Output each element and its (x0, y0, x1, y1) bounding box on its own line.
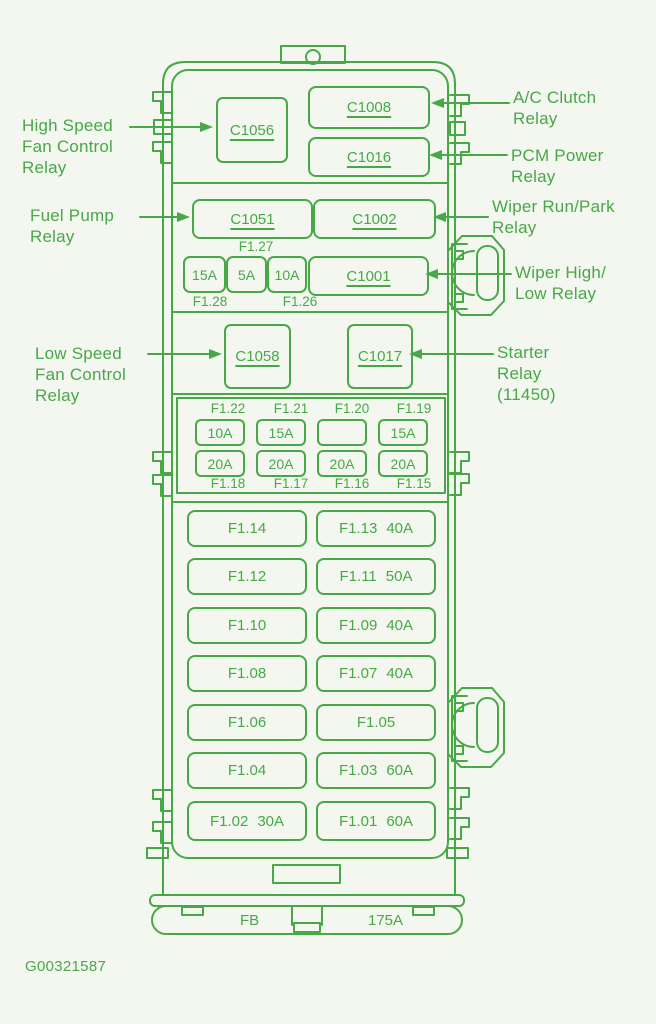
grid-fuse-f1-22: 10A (195, 419, 245, 446)
grid-fuse-f1-18: 20A (195, 450, 245, 477)
grid-label-f1-20: F1.20 (322, 401, 382, 416)
relay-c1008-label: C1008 (347, 99, 391, 116)
callout-low-speed-fan-control-relay: Low Speed Fan Control Relay (35, 343, 126, 406)
grid-label-f1-15: F1.15 (384, 476, 444, 491)
fuse-f1-08: F1.08 (187, 655, 307, 692)
fuse-f1-11: F1.1150A (316, 558, 436, 595)
relay-c1056: C1056 (216, 97, 288, 163)
fuse-f1-04: F1.04 (187, 752, 307, 789)
relay-c1001-label: C1001 (346, 268, 390, 285)
relay-c1058-label: C1058 (235, 348, 279, 365)
grid-label-f1-17: F1.17 (261, 476, 321, 491)
grid-label-f1-19: F1.19 (384, 401, 444, 416)
relay-c1051-label: C1051 (230, 211, 274, 228)
grid-label-f1-18: F1.18 (198, 476, 258, 491)
fuse-f1-02: F1.0230A (187, 801, 307, 841)
grid-fuse-f1-16: 20A (317, 450, 367, 477)
relay-c1017: C1017 (347, 324, 413, 389)
relay-c1002: C1002 (313, 199, 436, 239)
grid-fuse-f1-20-empty (317, 419, 367, 446)
bottom-bar-fb-label: FB (240, 912, 259, 929)
fuse-f1-03: F1.0360A (316, 752, 436, 789)
side-connector-lower (448, 688, 504, 767)
grid-fuse-f1-19: 15A (378, 419, 428, 446)
left-mounting-tabs (147, 92, 172, 858)
fuse-f1-12: F1.12 (187, 558, 307, 595)
relay-c1016-label: C1016 (347, 149, 391, 166)
callout-fuel-pump-relay: Fuel Pump Relay (30, 205, 114, 247)
fuse-f1-14: F1.14 (187, 510, 307, 547)
fuse-box-diagram: High Speed Fan Control Relay Fuel Pump R… (0, 0, 656, 1024)
fuse-f1-05: F1.05 (316, 704, 436, 741)
fuse-label-f1-27: F1.27 (226, 239, 286, 254)
fuse-f1-01: F1.0160A (316, 801, 436, 841)
relay-c1001: C1001 (308, 256, 429, 296)
relay-c1017-label: C1017 (358, 348, 402, 365)
fuse-f1-09: F1.0940A (316, 607, 436, 644)
relay-c1051: C1051 (192, 199, 313, 239)
fuse-10a: 10A (267, 256, 307, 293)
relay-c1008: C1008 (308, 86, 430, 129)
grid-fuse-f1-21: 15A (256, 419, 306, 446)
relay-c1016: C1016 (308, 137, 430, 177)
relay-c1058: C1058 (224, 324, 291, 389)
fuse-f1-07: F1.0740A (316, 655, 436, 692)
fuse-f1-13: F1.1340A (316, 510, 436, 547)
relay-c1056-label: C1056 (230, 122, 274, 139)
grid-fuse-f1-17: 20A (256, 450, 306, 477)
fuse-5a: 5A (226, 256, 267, 293)
fuse-label-f1-26: F1.26 (270, 294, 330, 309)
callout-wiper-high-low-relay: Wiper High/ Low Relay (515, 262, 606, 304)
fuse-f1-10: F1.10 (187, 607, 307, 644)
callout-ac-clutch-relay: A/C Clutch Relay (513, 87, 596, 129)
fuse-15a: 15A (183, 256, 226, 293)
figure-id: G00321587 (25, 958, 106, 975)
fuse-label-f1-28: F1.28 (180, 294, 240, 309)
callout-high-speed-fan-control-relay: High Speed Fan Control Relay (22, 115, 113, 178)
callout-wiper-run-park-relay: Wiper Run/Park Relay (492, 196, 615, 238)
side-connector-upper (448, 236, 504, 315)
fuse-f1-06: F1.06 (187, 704, 307, 741)
bottom-bar-175a-label: 175A (368, 912, 403, 929)
bottom-assembly (150, 865, 464, 934)
callout-starter-relay: Starter Relay (11450) (497, 342, 556, 405)
grid-label-f1-22: F1.22 (198, 401, 258, 416)
callout-pcm-power-relay: PCM Power Relay (511, 145, 604, 187)
grid-label-f1-16: F1.16 (322, 476, 382, 491)
right-mounting-tabs (447, 95, 469, 858)
grid-label-f1-21: F1.21 (261, 401, 321, 416)
grid-fuse-f1-15: 20A (378, 450, 428, 477)
relay-c1002-label: C1002 (352, 211, 396, 228)
